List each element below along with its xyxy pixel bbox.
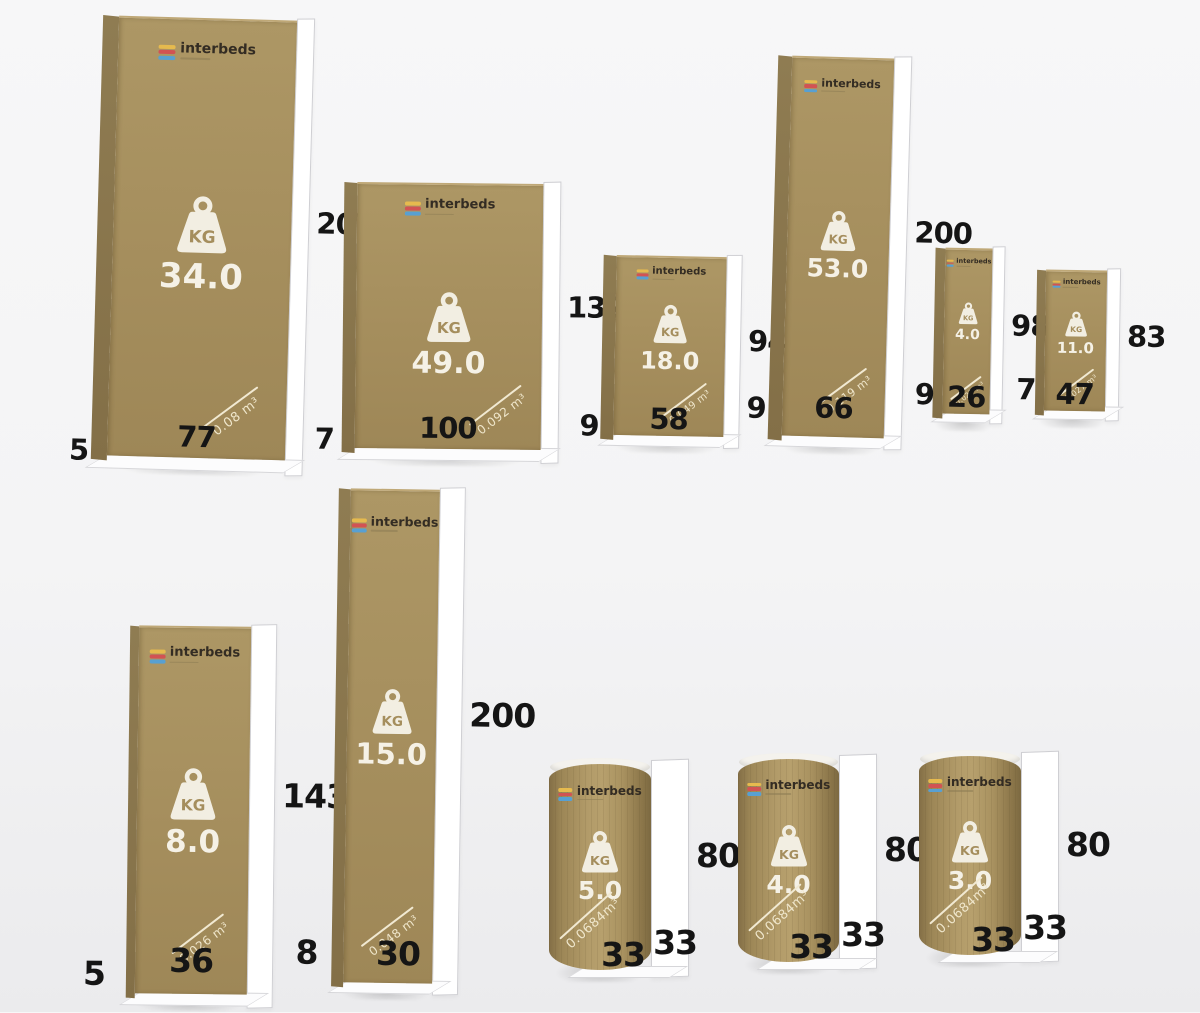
brand-logo: interbeds <box>946 258 991 268</box>
interbeds-logo-icon <box>946 260 954 267</box>
volume-label: 0.092 m³ <box>469 385 532 439</box>
weight-value: 53.0 <box>806 254 868 285</box>
height-value: 200 <box>469 695 535 735</box>
interbeds-logo-icon <box>804 80 818 92</box>
packaging-dimensions-diagram: 207 interbeds KG 34.0 0.08 m³ 77 <box>0 0 1200 1012</box>
brand-tagline <box>652 278 674 280</box>
kg-label: KG <box>779 847 799 862</box>
brand-tagline <box>180 58 211 61</box>
weight-badge: KG 3.0 <box>919 820 1021 895</box>
brand-tagline <box>821 90 845 92</box>
package-box-6: 83 interbeds KG 11.0 0.027 m³ 47 <box>1044 270 1107 412</box>
box-front-face: interbeds KG 18.0 0.049 m³ 58 <box>613 255 726 437</box>
kg-weight-icon: KG <box>955 302 981 326</box>
brand-name: interbeds <box>652 267 706 278</box>
package-box-3: 94 interbeds KG 18.0 0.049 m³ 58 <box>613 255 726 437</box>
kg-weight-icon: KG <box>364 687 419 736</box>
kg-weight-icon: KG <box>575 830 625 875</box>
weight-badge: KG 34.0 <box>111 193 292 300</box>
width-dimension: 36 <box>169 941 213 981</box>
weight-value: 34.0 <box>158 256 243 298</box>
brand-tagline <box>170 661 199 663</box>
kg-label: KG <box>962 315 973 323</box>
height-dimension-strip: 83 <box>1105 268 1121 421</box>
kg-label: KG <box>828 233 848 248</box>
package-box-8: 200 interbeds KG 15.0 0.048 m³ 30 <box>343 488 440 983</box>
weight-badge: KG 8.0 <box>136 766 249 860</box>
weight-badge: KG 49.0 <box>355 290 542 382</box>
width-dimension: 30 <box>376 934 421 974</box>
box-front-face: interbeds KG 15.0 0.048 m³ 30 <box>343 488 440 983</box>
kg-weight-icon: KG <box>168 194 238 257</box>
width-dimension: 47 <box>1055 377 1094 412</box>
cylinder-body: interbeds KG 5.0 0.0684m³ 33 <box>549 764 651 970</box>
weight-badge: KG 18.0 <box>614 303 725 375</box>
width-dimension: 58 <box>649 402 688 437</box>
kg-label: KG <box>590 853 610 868</box>
brand-logo: interbeds <box>558 785 642 801</box>
box-front-face: interbeds KG 34.0 0.08 m³ 77 <box>107 16 297 461</box>
brand-logo: interbeds <box>351 515 438 533</box>
brand-name: interbeds <box>180 41 256 57</box>
interbeds-logo-icon <box>747 783 761 796</box>
package-cylinder-3: 80 interbeds KG 3.0 0.0684m³ 33 <box>919 756 1021 955</box>
kg-label: KG <box>960 843 980 858</box>
brand-logo: interbeds <box>928 776 1012 792</box>
height-value: 80 <box>1066 825 1110 864</box>
weight-badge: KG 5.0 <box>549 830 651 905</box>
diameter-dimension: 33 <box>971 920 1015 959</box>
box-front-face: interbeds KG 4.0 0.023 m³ 26 <box>942 248 992 415</box>
brand-logo: interbeds <box>636 266 706 281</box>
brand-logo: interbeds <box>150 646 241 665</box>
depth-dimension: 9 <box>579 408 599 442</box>
brand-logo: interbeds <box>747 779 831 795</box>
brand-name: interbeds <box>1063 279 1101 287</box>
kg-weight-icon: KG <box>814 210 863 255</box>
interbeds-logo-icon <box>928 779 942 792</box>
weight-value: 4.0 <box>955 327 980 343</box>
kg-label: KG <box>181 796 206 814</box>
weight-badge: KG 53.0 <box>786 209 890 285</box>
diameter-side-dimension: 33 <box>1023 908 1067 947</box>
brand-tagline <box>371 530 399 532</box>
kg-label: KG <box>437 318 461 336</box>
height-value: 83 <box>1127 319 1166 354</box>
cylinder-body: interbeds KG 4.0 0.0684m³ 33 <box>738 759 839 962</box>
depth-dimension: 9 <box>746 391 766 426</box>
brand-tagline <box>765 793 791 795</box>
brand-tagline <box>947 790 973 792</box>
weight-badge: KG 15.0 <box>346 687 436 772</box>
box-front-face: interbeds KG 11.0 0.027 m³ 47 <box>1044 270 1107 412</box>
width-dimension: 77 <box>177 419 216 454</box>
package-box-1: 207 interbeds KG 34.0 0.08 m³ 77 <box>107 16 297 461</box>
brand-name: interbeds <box>947 776 1012 788</box>
kg-label: KG <box>661 325 680 339</box>
depth-dimension: 7 <box>1016 372 1036 406</box>
brand-logo: interbeds <box>804 77 881 94</box>
kg-weight-icon: KG <box>419 290 480 345</box>
kg-weight-icon: KG <box>1061 311 1091 338</box>
weight-badge: KG 4.0 <box>944 302 992 343</box>
brand-logo: interbeds <box>158 41 256 63</box>
height-value: 80 <box>696 836 740 875</box>
box-front-face: interbeds KG 53.0 0.119 m³ 66 <box>782 56 895 439</box>
width-dimension: 100 <box>419 411 477 446</box>
diameter-dimension: 33 <box>601 935 645 974</box>
height-dimension-strip: 132 <box>540 182 561 464</box>
diameter-side-dimension: 33 <box>841 915 885 954</box>
brand-tagline <box>577 799 603 801</box>
brand-name: interbeds <box>956 258 991 265</box>
kg-label: KG <box>1070 325 1082 334</box>
brand-name: interbeds <box>425 198 495 212</box>
kg-weight-icon: KG <box>647 304 694 346</box>
interbeds-logo-icon <box>158 45 175 61</box>
weight-badge: KG 4.0 <box>738 824 839 899</box>
brand-tagline <box>1063 287 1078 288</box>
kg-label: KG <box>381 713 403 729</box>
package-cylinder-1: 80 interbeds KG 5.0 0.0684m³ 33 <box>549 764 651 970</box>
diameter-side-dimension: 33 <box>653 923 697 962</box>
interbeds-logo-icon <box>1052 281 1061 289</box>
depth-dimension: 9 <box>914 377 934 411</box>
brand-name: interbeds <box>371 515 439 529</box>
box-front-face: interbeds KG 49.0 0.092 m³ 100 <box>355 182 544 450</box>
kg-weight-icon: KG <box>945 820 995 865</box>
kg-weight-icon: KG <box>162 767 225 824</box>
package-cylinder-2: 80 interbeds KG 4.0 0.0684m³ 33 <box>738 759 839 962</box>
package-box-7: 143 interbeds KG 8.0 0.026 m³ 36 <box>135 625 251 994</box>
brand-logo: interbeds <box>1052 279 1101 289</box>
brand-tagline <box>956 266 970 267</box>
weight-value: 11.0 <box>1057 339 1094 358</box>
width-dimension: 66 <box>814 390 853 425</box>
weight-value: 49.0 <box>411 345 485 381</box>
weight-value: 8.0 <box>165 824 220 861</box>
brand-tagline <box>425 213 454 215</box>
cylinder-body: interbeds KG 3.0 0.0684m³ 33 <box>919 756 1021 955</box>
interbeds-logo-icon <box>150 649 166 663</box>
kg-weight-icon: KG <box>764 824 814 869</box>
package-box-5: 98 interbeds KG 4.0 0.023 m³ 26 <box>942 248 992 415</box>
weight-value: 18.0 <box>640 346 700 375</box>
width-dimension: 26 <box>947 380 986 415</box>
interbeds-logo-icon <box>636 269 648 280</box>
interbeds-logo-icon <box>558 788 572 801</box>
depth-dimension: 5 <box>69 432 89 467</box>
diameter-dimension: 33 <box>789 927 833 966</box>
depth-dimension: 7 <box>315 422 335 456</box>
brand-name: interbeds <box>765 779 830 791</box>
height-value: 200 <box>914 216 972 252</box>
weight-value: 15.0 <box>355 737 427 772</box>
brand-name: interbeds <box>821 77 881 90</box>
brand-name: interbeds <box>170 646 240 660</box>
interbeds-logo-icon <box>405 201 421 215</box>
depth-dimension: 8 <box>295 933 318 972</box>
brand-name: interbeds <box>577 785 642 797</box>
package-box-4: 200 interbeds KG 53.0 0.119 m³ 66 <box>782 56 895 439</box>
weight-badge: KG 11.0 <box>1045 310 1107 357</box>
interbeds-logo-icon <box>351 518 366 532</box>
box-front-face: interbeds KG 8.0 0.026 m³ 36 <box>135 625 251 994</box>
brand-logo: interbeds <box>405 198 496 217</box>
package-box-2: 132 interbeds KG 49.0 0.092 m³ 100 <box>355 182 544 450</box>
height-dimension-strip: 143 <box>247 624 278 1009</box>
depth-dimension: 5 <box>83 954 105 993</box>
kg-label: KG <box>188 227 216 248</box>
